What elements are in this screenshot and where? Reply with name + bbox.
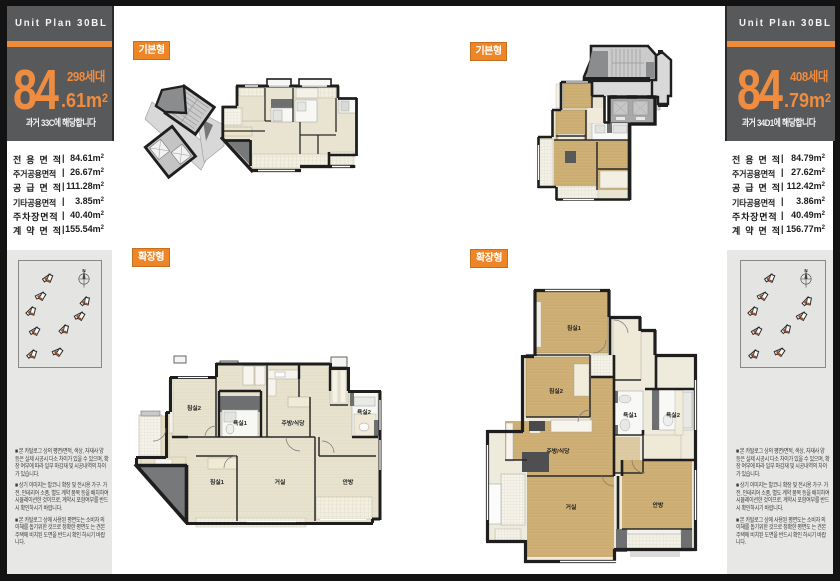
svg-text:침실2: 침실2 bbox=[549, 387, 563, 395]
svg-text:주방/식당: 주방/식당 bbox=[282, 419, 306, 427]
svg-text:거실: 거실 bbox=[275, 478, 286, 486]
svg-text:욕실1: 욕실1 bbox=[233, 419, 248, 427]
svg-text:주방/식당: 주방/식당 bbox=[547, 447, 571, 455]
svg-text:침실1: 침실1 bbox=[210, 478, 225, 486]
svg-text:욕실2: 욕실2 bbox=[357, 408, 371, 416]
svg-text:욕실1: 욕실1 bbox=[623, 411, 638, 419]
svg-text:안방: 안방 bbox=[653, 501, 664, 509]
svg-text:거실: 거실 bbox=[566, 503, 577, 511]
svg-text:침실2: 침실2 bbox=[187, 404, 201, 412]
svg-text:침실1: 침실1 bbox=[567, 324, 582, 332]
svg-text:욕실2: 욕실2 bbox=[666, 411, 680, 419]
svg-text:안방: 안방 bbox=[343, 478, 354, 486]
